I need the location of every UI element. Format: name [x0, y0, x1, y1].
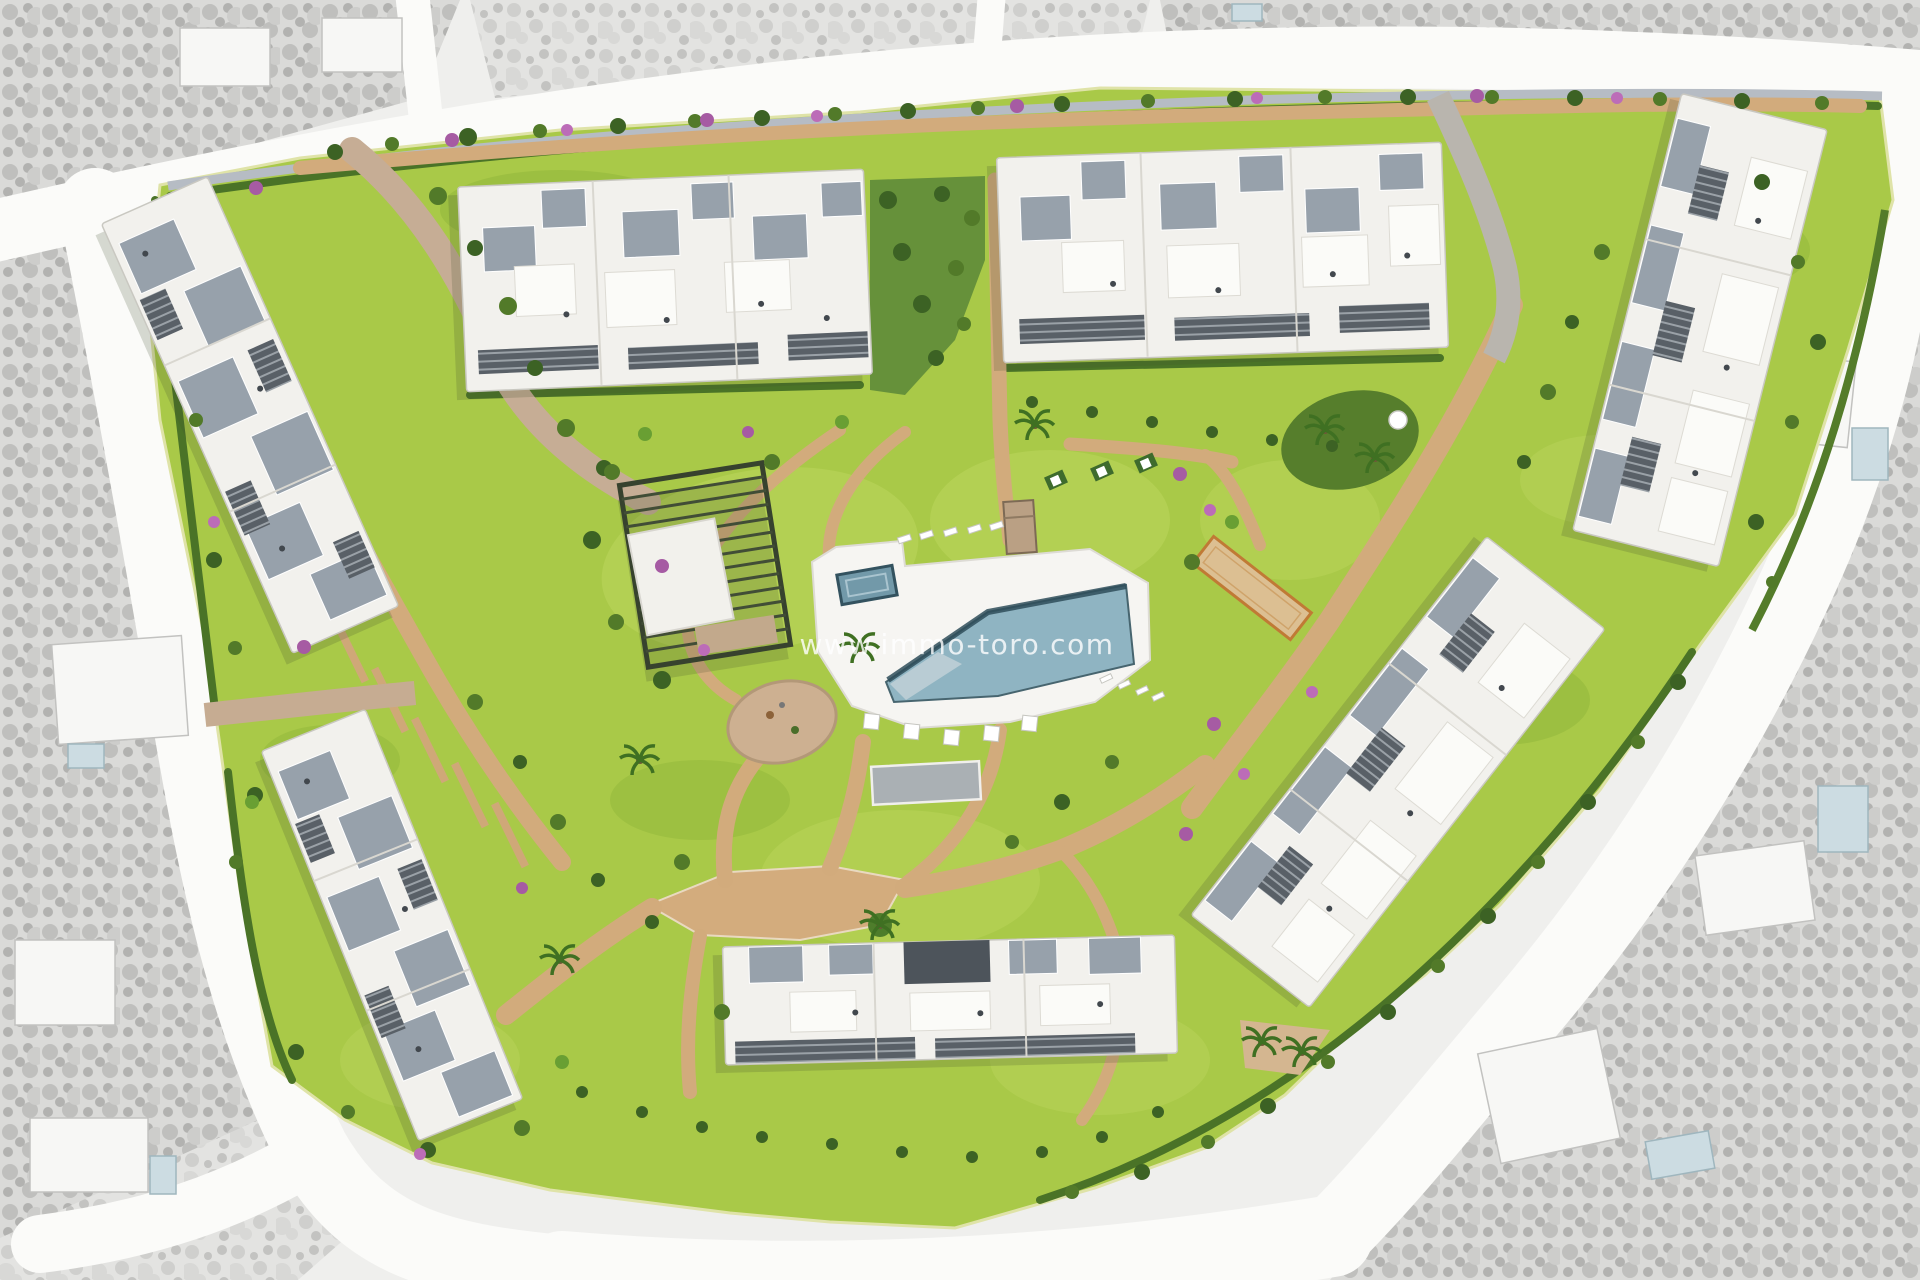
villa-pool-east-1 — [1852, 428, 1888, 480]
road-branch-n1 — [412, 0, 428, 138]
road-south — [562, 1236, 1332, 1280]
villa-west-3 — [30, 1118, 148, 1192]
villa-north-2 — [322, 18, 402, 72]
villa-pool-west-2 — [150, 1156, 176, 1194]
villa-west-2 — [15, 940, 115, 1025]
building-f-south — [713, 935, 1178, 1073]
villa-east-3 — [1478, 1029, 1621, 1164]
villa-west-1 — [52, 636, 189, 745]
villa-pool-east-2 — [1818, 786, 1868, 852]
building-b-north-center-left — [448, 169, 873, 400]
villa-north-1 — [180, 28, 270, 86]
watermark-text: www.immo-toro.com — [800, 628, 1115, 661]
site-plan-rendering: www.immo-toro.com — [0, 0, 1920, 1280]
garden-parasol — [1389, 411, 1407, 429]
aerial-render-canvas: www.immo-toro.com — [0, 0, 1920, 1280]
gym-building — [871, 761, 981, 805]
villa-pool-north — [1232, 4, 1262, 21]
building-c-north-center-right — [987, 142, 1449, 371]
bar-pavilion — [1003, 500, 1037, 554]
villa-pool-west-1 — [68, 744, 104, 768]
pergola-canopy — [628, 518, 734, 635]
villa-east-2 — [1695, 841, 1815, 936]
road-branch-n2 — [986, 0, 992, 66]
